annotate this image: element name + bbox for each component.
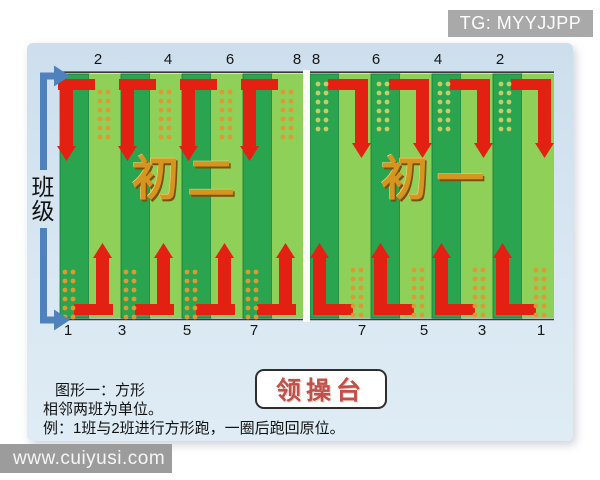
run-arrow-segment — [157, 258, 170, 315]
students-dot — [542, 304, 547, 309]
lane-number: 3 — [111, 322, 133, 339]
students-dot — [481, 277, 486, 282]
students-dot — [542, 313, 547, 318]
students-dot — [316, 82, 321, 87]
caption-line-2: 相邻两班为单位。 — [43, 398, 163, 419]
students-dot — [254, 306, 259, 311]
run-arrow-segment — [60, 79, 73, 146]
students-dot — [220, 99, 225, 104]
students-dot — [106, 108, 111, 113]
students-dot — [324, 118, 329, 123]
students-dot — [98, 135, 103, 140]
students-dot — [377, 100, 382, 105]
students-dot — [63, 306, 68, 311]
students-dot — [167, 90, 172, 95]
students-dot — [246, 315, 251, 320]
students-dot — [193, 306, 198, 311]
lane-number: 5 — [176, 322, 198, 339]
students-dot — [534, 313, 539, 318]
students-dot — [351, 268, 356, 273]
students-dot — [420, 277, 425, 282]
run-arrow-segment — [243, 79, 256, 146]
students-dot — [438, 82, 443, 87]
students-dot — [228, 108, 233, 113]
students-dot — [63, 288, 68, 293]
students-dot — [359, 286, 364, 291]
lane-number: 2 — [87, 51, 109, 68]
page: TG: MYYJJPP 班级 初二 初一 2468864213577531 领操… — [0, 0, 600, 480]
students-dot — [185, 279, 190, 284]
grade-label-junior1: 初一 — [367, 153, 507, 207]
students-dot — [446, 109, 451, 114]
students-dot — [324, 91, 329, 96]
students-dot — [193, 279, 198, 284]
run-arrow-segment — [416, 79, 429, 143]
students-dot — [159, 99, 164, 104]
students-dot — [351, 295, 356, 300]
run-arrow-segment — [374, 304, 414, 315]
class-axis-label: 班级 — [29, 176, 57, 224]
students-dot — [481, 295, 486, 300]
students-dot — [473, 295, 478, 300]
students-dot — [534, 304, 539, 309]
students-dot — [412, 304, 417, 309]
students-dot — [377, 91, 382, 96]
class-axis-arrow-bottom — [44, 228, 55, 320]
students-dot — [420, 295, 425, 300]
students-dot — [98, 108, 103, 113]
students-dot — [185, 288, 190, 293]
students-dot — [499, 100, 504, 105]
students-dot — [499, 82, 504, 87]
students-dot — [420, 268, 425, 273]
students-dot — [542, 295, 547, 300]
students-dot — [446, 82, 451, 87]
students-dot — [507, 127, 512, 132]
students-dot — [193, 288, 198, 293]
lane-number: 2 — [489, 51, 511, 68]
students-dot — [316, 91, 321, 96]
students-dot — [351, 313, 356, 318]
students-dot — [254, 297, 259, 302]
students-dot — [71, 279, 76, 284]
students-dot — [377, 118, 382, 123]
students-dot — [351, 304, 356, 309]
students-dot — [71, 288, 76, 293]
students-dot — [289, 135, 294, 140]
students-dot — [63, 297, 68, 302]
students-dot — [220, 117, 225, 122]
students-dot — [507, 82, 512, 87]
students-dot — [71, 315, 76, 320]
run-arrow-segment — [313, 304, 353, 315]
students-dot — [124, 279, 129, 284]
students-dot — [446, 100, 451, 105]
students-dot — [106, 117, 111, 122]
students-dot — [359, 277, 364, 282]
students-dot — [438, 91, 443, 96]
students-dot — [412, 277, 417, 282]
students-dot — [132, 279, 137, 284]
students-dot — [71, 270, 76, 275]
students-dot — [124, 270, 129, 275]
students-dot — [98, 90, 103, 95]
students-dot — [481, 304, 486, 309]
students-dot — [63, 270, 68, 275]
students-dot — [385, 100, 390, 105]
run-arrow-segment — [218, 258, 231, 315]
students-dot — [98, 117, 103, 122]
students-dot — [412, 268, 417, 273]
students-dot — [534, 268, 539, 273]
grade-label-junior2: 初二 — [118, 153, 258, 207]
lane-number: 1 — [530, 322, 552, 339]
students-dot — [124, 306, 129, 311]
students-dot — [63, 279, 68, 284]
students-dot — [438, 118, 443, 123]
students-dot — [220, 90, 225, 95]
students-dot — [481, 313, 486, 318]
lane-number: 6 — [219, 51, 241, 68]
students-dot — [167, 117, 172, 122]
students-dot — [446, 127, 451, 132]
students-dot — [98, 126, 103, 131]
students-dot — [481, 268, 486, 273]
students-dot — [185, 306, 190, 311]
students-dot — [167, 99, 172, 104]
students-dot — [185, 270, 190, 275]
run-arrow-segment — [477, 79, 490, 143]
students-dot — [98, 99, 103, 104]
students-dot — [246, 279, 251, 284]
students-dot — [542, 277, 547, 282]
students-dot — [316, 118, 321, 123]
students-dot — [481, 286, 486, 291]
run-arrow-segment — [355, 79, 368, 143]
students-dot — [281, 90, 286, 95]
students-dot — [185, 315, 190, 320]
students-dot — [499, 109, 504, 114]
students-dot — [228, 135, 233, 140]
students-dot — [324, 109, 329, 114]
lane-number: 7 — [243, 322, 265, 339]
students-dot — [289, 90, 294, 95]
students-dot — [499, 118, 504, 123]
students-dot — [499, 127, 504, 132]
students-dot — [377, 109, 382, 114]
students-dot — [193, 315, 198, 320]
students-dot — [132, 306, 137, 311]
students-dot — [106, 126, 111, 131]
students-dot — [507, 91, 512, 96]
caption-line-1: 图形一：方形 — [55, 379, 145, 400]
students-dot — [542, 286, 547, 291]
students-dot — [281, 117, 286, 122]
students-dot — [507, 109, 512, 114]
lane-number: 4 — [157, 51, 179, 68]
students-dot — [124, 315, 129, 320]
students-dot — [228, 99, 233, 104]
students-dot — [542, 268, 547, 273]
students-dot — [420, 286, 425, 291]
students-dot — [412, 286, 417, 291]
students-dot — [124, 288, 129, 293]
students-dot — [324, 100, 329, 105]
students-dot — [412, 295, 417, 300]
run-arrow-segment — [182, 79, 195, 146]
students-dot — [534, 277, 539, 282]
students-dot — [420, 304, 425, 309]
lane-number: 6 — [365, 51, 387, 68]
students-dot — [71, 306, 76, 311]
students-dot — [438, 100, 443, 105]
lane-number: 1 — [57, 322, 79, 339]
students-dot — [507, 100, 512, 105]
site-watermark-bar: www.cuiyusi.com — [0, 444, 172, 473]
students-dot — [71, 297, 76, 302]
students-dot — [159, 108, 164, 113]
students-dot — [167, 108, 172, 113]
students-dot — [289, 117, 294, 122]
students-dot — [473, 304, 478, 309]
lane-number: 5 — [413, 322, 435, 339]
lane-number: 8 — [305, 51, 327, 68]
students-dot — [316, 100, 321, 105]
students-dot — [228, 126, 233, 131]
students-dot — [412, 313, 417, 318]
students-dot — [351, 286, 356, 291]
students-dot — [220, 135, 225, 140]
students-dot — [106, 135, 111, 140]
students-dot — [228, 117, 233, 122]
students-dot — [106, 99, 111, 104]
students-dot — [316, 127, 321, 132]
students-dot — [507, 118, 512, 123]
students-dot — [359, 295, 364, 300]
run-arrow-segment — [121, 79, 134, 146]
students-dot — [473, 313, 478, 318]
students-dot — [377, 82, 382, 87]
students-dot — [316, 109, 321, 114]
students-dot — [132, 270, 137, 275]
students-dot — [254, 279, 259, 284]
students-dot — [438, 109, 443, 114]
run-arrow-segment — [496, 304, 536, 315]
students-dot — [385, 91, 390, 96]
students-dot — [359, 268, 364, 273]
students-dot — [499, 91, 504, 96]
students-dot — [254, 288, 259, 293]
platform-box: 领操台 — [255, 369, 387, 409]
students-dot — [124, 297, 129, 302]
students-dot — [324, 82, 329, 87]
students-dot — [246, 297, 251, 302]
students-dot — [167, 135, 172, 140]
students-dot — [438, 127, 443, 132]
students-dot — [159, 135, 164, 140]
students-dot — [132, 297, 137, 302]
students-dot — [193, 297, 198, 302]
students-dot — [324, 127, 329, 132]
students-dot — [132, 288, 137, 293]
students-dot — [281, 99, 286, 104]
lane-number: 4 — [427, 51, 449, 68]
run-arrow-segment — [279, 258, 292, 315]
students-dot — [420, 313, 425, 318]
students-dot — [534, 295, 539, 300]
platform-label: 领操台 — [276, 371, 366, 407]
run-arrow-segment — [96, 258, 109, 315]
students-dot — [446, 91, 451, 96]
caption-line-3: 例：1班与2班进行方形跑，一圈后跑回原位。 — [43, 417, 345, 438]
run-arrow-segment — [435, 304, 475, 315]
students-dot — [220, 126, 225, 131]
students-dot — [385, 118, 390, 123]
students-dot — [385, 127, 390, 132]
students-dot — [289, 126, 294, 131]
students-dot — [359, 304, 364, 309]
students-dot — [473, 277, 478, 282]
students-dot — [106, 90, 111, 95]
run-arrow-segment — [538, 79, 551, 143]
students-dot — [351, 277, 356, 282]
students-dot — [281, 108, 286, 113]
students-dot — [246, 306, 251, 311]
students-dot — [289, 99, 294, 104]
field-divider — [303, 70, 310, 322]
students-dot — [246, 270, 251, 275]
students-dot — [228, 90, 233, 95]
students-dot — [377, 127, 382, 132]
students-dot — [167, 126, 172, 131]
students-dot — [281, 135, 286, 140]
students-dot — [281, 126, 286, 131]
students-dot — [159, 117, 164, 122]
students-dot — [193, 270, 198, 275]
students-dot — [289, 108, 294, 113]
students-dot — [132, 315, 137, 320]
students-dot — [159, 126, 164, 131]
students-dot — [254, 315, 259, 320]
class-axis-arrow-top — [44, 76, 55, 170]
students-dot — [473, 268, 478, 273]
lane-number: 7 — [351, 322, 373, 339]
students-dot — [185, 297, 190, 302]
site-watermark-text: www.cuiyusi.com — [0, 448, 165, 470]
students-dot — [385, 109, 390, 114]
students-dot — [473, 286, 478, 291]
students-dot — [159, 90, 164, 95]
students-dot — [446, 118, 451, 123]
students-dot — [385, 82, 390, 87]
students-dot — [220, 108, 225, 113]
students-dot — [254, 270, 259, 275]
students-dot — [359, 313, 364, 318]
lane-number: 3 — [471, 322, 493, 339]
students-dot — [534, 286, 539, 291]
students-dot — [246, 288, 251, 293]
